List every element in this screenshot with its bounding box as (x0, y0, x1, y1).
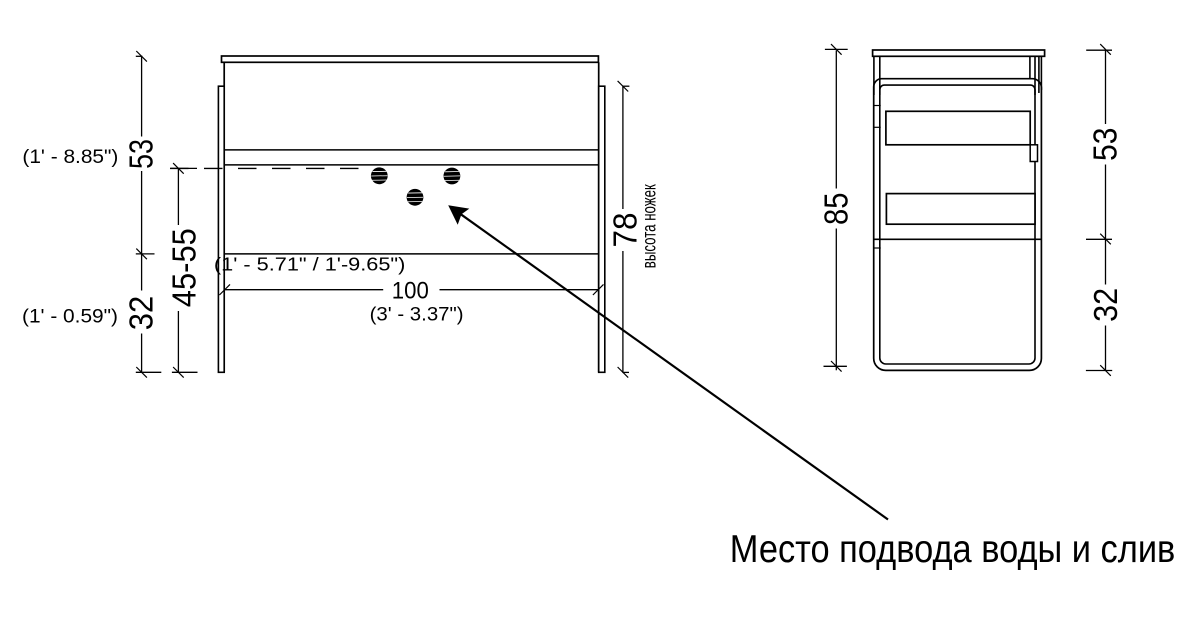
svg-text:(1' - 5.71" / 1'-9.65"): (1' - 5.71" / 1'-9.65") (214, 253, 406, 274)
svg-text:45-55: 45-55 (166, 228, 203, 307)
svg-text:53: 53 (1087, 128, 1124, 162)
svg-text:Место подвода воды и слив: Место подвода воды и слив (730, 528, 1176, 571)
svg-text:85: 85 (818, 192, 855, 225)
svg-text:(1' - 8.85"): (1' - 8.85") (22, 147, 118, 168)
svg-text:32: 32 (1087, 288, 1124, 322)
svg-text:(1' - 0.59"): (1' - 0.59") (22, 306, 118, 327)
svg-text:53: 53 (122, 139, 159, 169)
svg-text:100: 100 (392, 278, 429, 305)
svg-text:32: 32 (122, 296, 159, 331)
svg-text:78: 78 (607, 213, 644, 248)
svg-text:высота ножек: высота ножек (639, 184, 660, 268)
svg-text:(3' - 3.37"): (3' - 3.37") (370, 303, 464, 325)
